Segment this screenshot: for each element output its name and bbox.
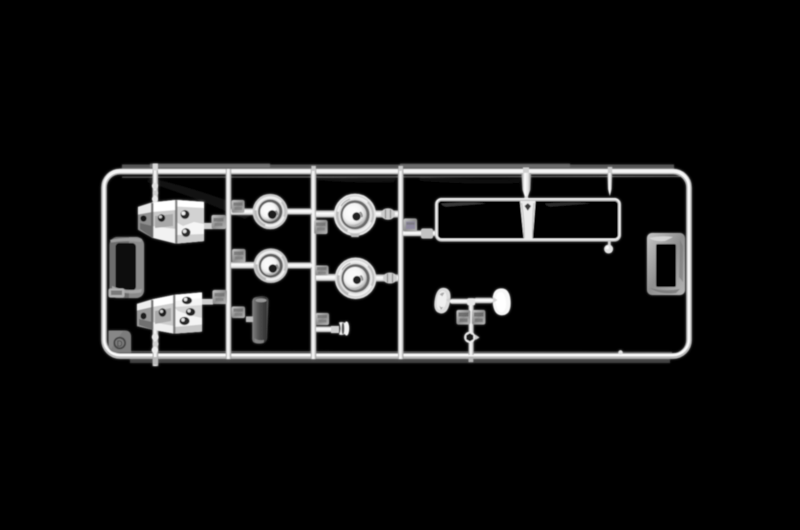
svg-text:D: D bbox=[117, 339, 123, 348]
